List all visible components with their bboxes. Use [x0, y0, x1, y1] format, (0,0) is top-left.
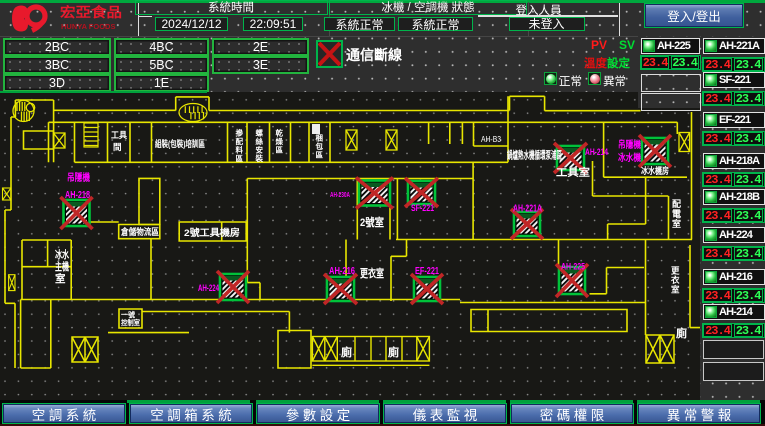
- svg-text:倉儲物流區: 倉儲物流區: [120, 226, 159, 237]
- svg-text:AH-214: AH-214: [585, 147, 608, 158]
- svg-text:SF-221: SF-221: [411, 203, 435, 214]
- svg-text:組裝(包裝)培訓區: 組裝(包裝)培訓區: [155, 138, 205, 149]
- svg-text:吊隱機: 吊隱機: [67, 171, 90, 184]
- svg-text:更衣室: 更衣室: [360, 266, 384, 280]
- svg-text:主機: 主機: [55, 260, 69, 273]
- svg-text:吊隱機: 吊隱機: [618, 139, 641, 151]
- svg-text:AH-B3: AH-B3: [481, 134, 501, 144]
- svg-text:AH-221A: AH-221A: [513, 204, 542, 215]
- svg-text:控制室: 控制室: [121, 318, 140, 327]
- svg-text:螺絲安裝: 螺絲安裝: [255, 128, 264, 164]
- svg-text:室: 室: [55, 272, 66, 285]
- svg-text:AH-230A: AH-230A: [330, 190, 350, 199]
- svg-text:冰水機: 冰水機: [618, 152, 641, 164]
- svg-text:AH-224: AH-224: [198, 283, 219, 294]
- svg-text:廁: 廁: [341, 345, 352, 359]
- svg-text:冰水: 冰水: [55, 248, 69, 261]
- svg-text:廁: 廁: [388, 345, 399, 359]
- svg-text:冰水機房: 冰水機房: [641, 165, 669, 176]
- svg-text:2號室: 2號室: [360, 215, 384, 229]
- svg-text:工具室: 工具室: [556, 166, 590, 179]
- svg-text:鍋爐熱水機循環泵浦區: 鍋爐熱水機循環泵浦區: [507, 149, 562, 162]
- svg-text:配電室: 配電室: [672, 199, 681, 229]
- svg-text:更衣室: 更衣室: [671, 266, 680, 295]
- svg-text:AH-225: AH-225: [561, 262, 586, 273]
- svg-text:一號: 一號: [121, 310, 135, 319]
- svg-text:摻配料區: 摻配料區: [236, 128, 244, 164]
- svg-text:梱包區: 梱包區: [315, 133, 324, 160]
- svg-text:宏亞食品: 宏亞食品: [60, 4, 122, 20]
- svg-text:廁: 廁: [676, 326, 687, 340]
- svg-text:EF-221: EF-221: [415, 266, 439, 277]
- svg-text:AH-218: AH-218: [65, 190, 90, 201]
- svg-text:AH-216: AH-216: [329, 266, 355, 277]
- svg-text:2號工具機房: 2號工具機房: [184, 227, 240, 239]
- svg-text:HUNYA FOODS: HUNYA FOODS: [61, 22, 115, 31]
- svg-text:乾燥區: 乾燥區: [276, 128, 284, 155]
- svg-text:工具: 工具: [111, 130, 127, 140]
- svg-text:間: 間: [113, 142, 122, 152]
